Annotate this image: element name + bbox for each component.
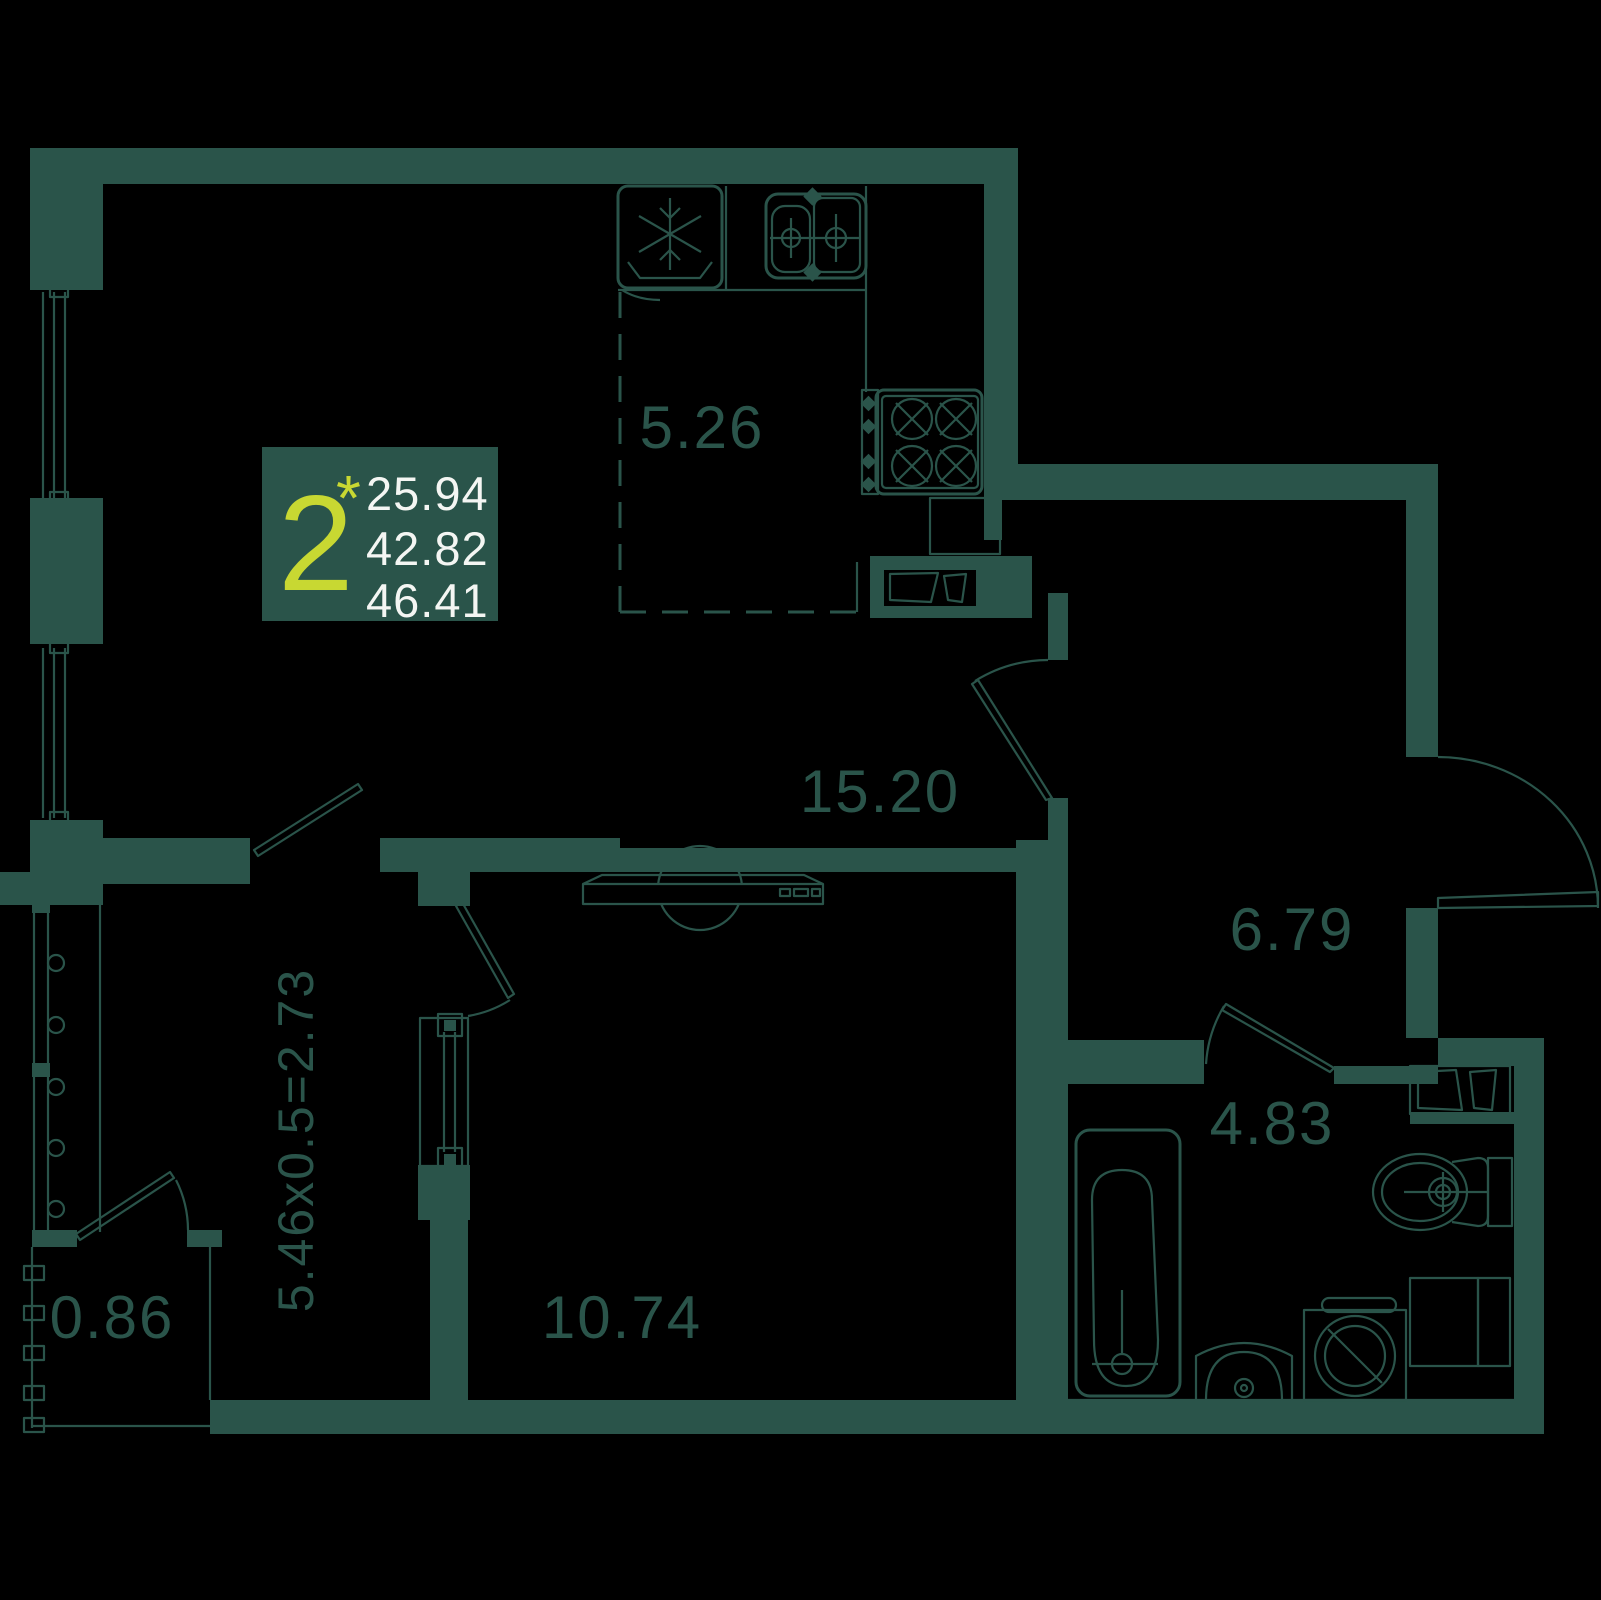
bedroom-door <box>456 902 514 1016</box>
apartment-area-value: 42.82 <box>366 522 489 575</box>
room-label-bathroom: 4.83 <box>1210 1090 1335 1157</box>
floor-plan-page: 5.26 15.20 6.79 4.83 10.74 0.86 5.46x0.5… <box>0 0 1601 1600</box>
room-label-kitchen: 5.26 <box>640 394 765 461</box>
loggia-door <box>254 784 362 856</box>
bathtub-icon <box>1076 1130 1180 1396</box>
balcony-door <box>76 1172 188 1240</box>
window-kitchen <box>43 284 68 505</box>
stove-icon <box>861 390 982 494</box>
bathroom-sink-icon <box>1196 1343 1292 1400</box>
total-area-value: 46.41 <box>366 574 489 627</box>
living-hall-door <box>972 660 1052 800</box>
bathroom-door <box>1206 1004 1334 1072</box>
room-label-balcony: 0.86 <box>50 1284 175 1351</box>
washing-machine-icon <box>1304 1298 1406 1400</box>
entrance-door <box>1438 757 1598 908</box>
vent-shaft-niche <box>884 570 976 606</box>
kitchen-sink-icon <box>766 187 866 281</box>
loggia-dimension-label: 5.46x0.5=2.73 <box>268 968 324 1312</box>
living-area-value: 25.94 <box>366 467 489 520</box>
room-label-living: 15.20 <box>800 758 960 825</box>
floor-plan: 5.26 15.20 6.79 4.83 10.74 0.86 5.46x0.5… <box>0 0 1601 1600</box>
room-label-hallway: 6.79 <box>1230 896 1355 963</box>
rooms-count-asterisk: * <box>336 462 361 534</box>
snowflake-icon <box>639 198 701 270</box>
loggia-railing <box>32 903 100 1232</box>
room-label-bedroom: 10.74 <box>542 1284 702 1351</box>
toilet-icon <box>1373 1154 1512 1230</box>
loggia-partition-window <box>420 1014 468 1170</box>
info-box: 2 * 25.94 42.82 46.41 <box>262 447 498 627</box>
window-living <box>43 640 68 825</box>
walls <box>0 148 1544 1434</box>
